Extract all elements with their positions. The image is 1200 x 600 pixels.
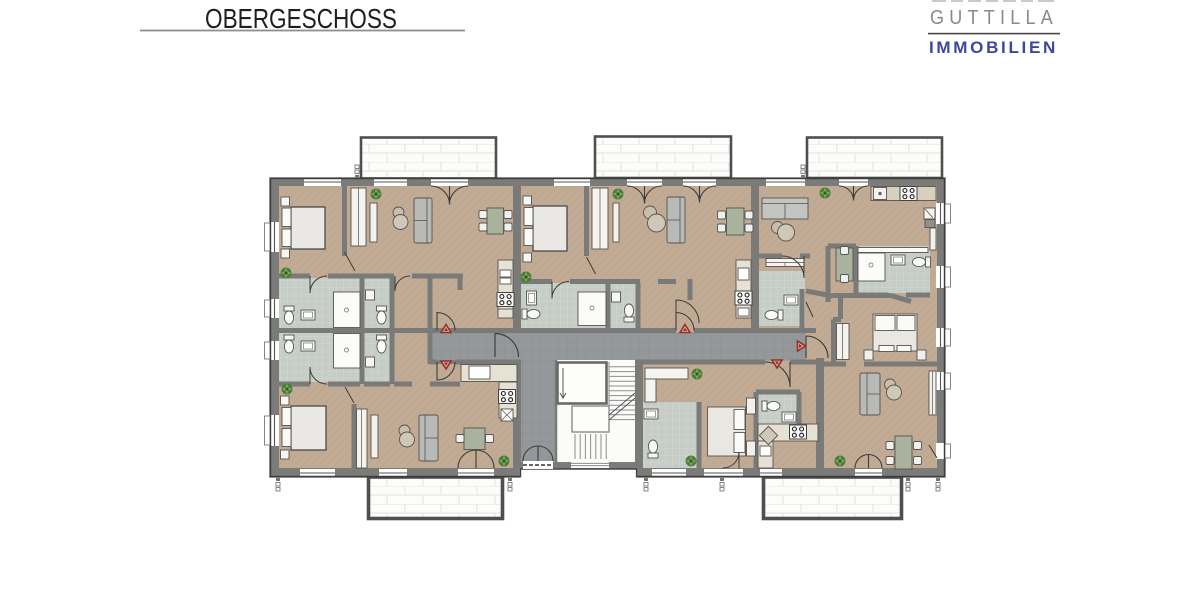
svg-text:OBERGESCHOSS: OBERGESCHOSS — [205, 3, 397, 34]
svg-text:GUTTILLA: GUTTILLA — [930, 6, 1058, 29]
svg-text:IMMOBILIEN: IMMOBILIEN — [929, 39, 1058, 57]
